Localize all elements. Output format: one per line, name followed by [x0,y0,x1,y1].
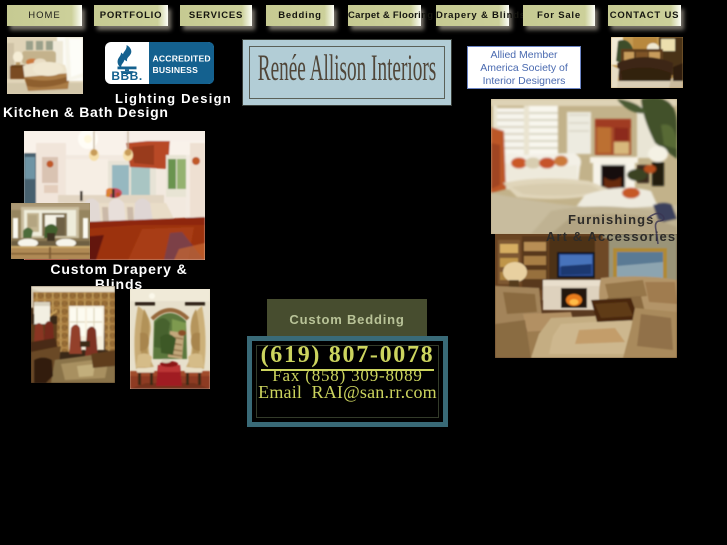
svg-text:ACCREDITED: ACCREDITED [153,54,211,64]
svg-text:BUSINESS: BUSINESS [153,65,199,75]
svg-text:BBB.: BBB. [111,69,142,83]
